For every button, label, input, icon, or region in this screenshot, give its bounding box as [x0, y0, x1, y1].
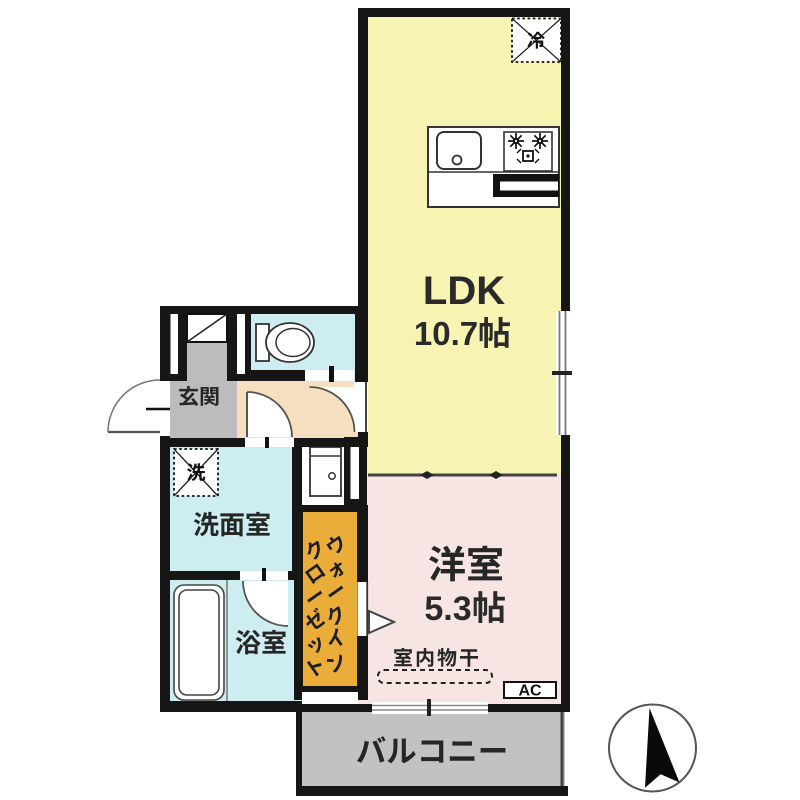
svg-text:5.3: 5.3	[424, 590, 471, 628]
svg-text:AC: AC	[518, 683, 542, 700]
svg-text:LDK: LDK	[423, 269, 505, 313]
svg-text:10.7: 10.7	[414, 315, 478, 352]
